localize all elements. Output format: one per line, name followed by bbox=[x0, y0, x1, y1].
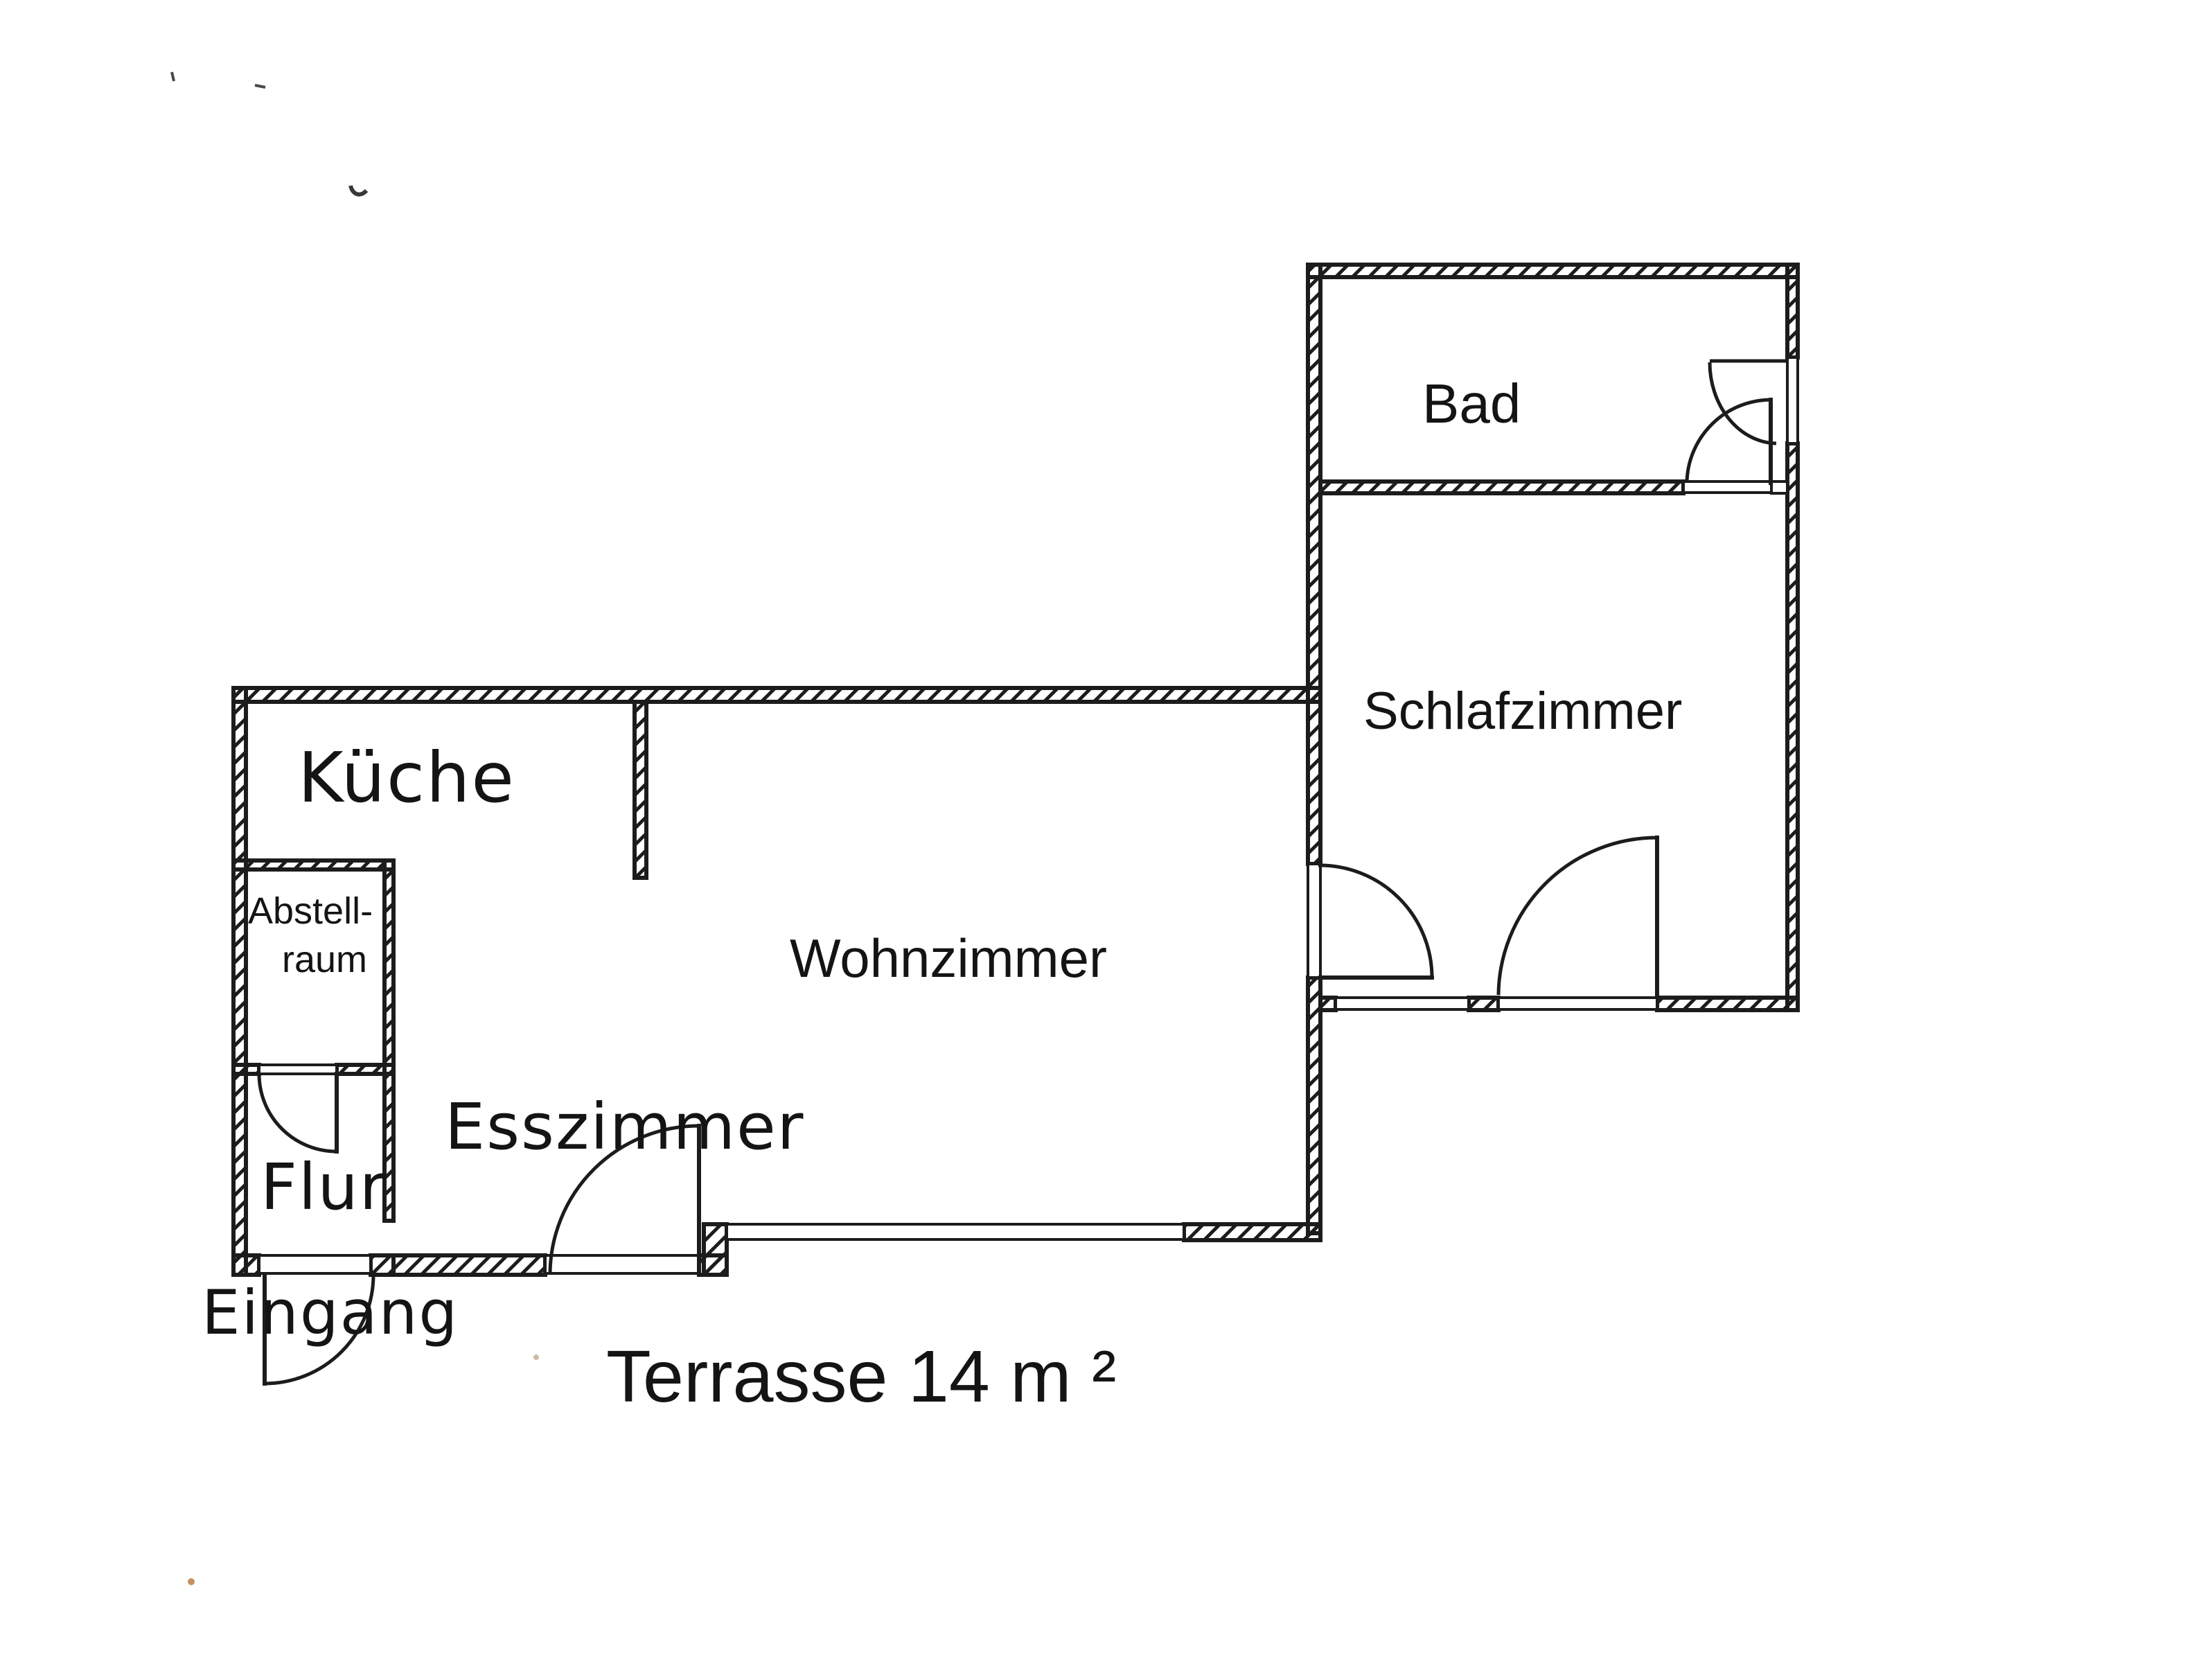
wall-schlafzimmer-bottom-c bbox=[1657, 998, 1798, 1010]
threshold-abstellraum-door bbox=[259, 1065, 337, 1074]
threshold-schlafzimmer-terrace-door bbox=[1498, 998, 1657, 1009]
label-flur: Flur bbox=[260, 1150, 387, 1224]
label-bad: Bad bbox=[1422, 373, 1521, 434]
label-abstellraum-line2: raum bbox=[282, 939, 367, 980]
scan-artifact-tick bbox=[172, 72, 174, 81]
wall-left-right-section bbox=[1308, 265, 1320, 864]
scan-artifact-tan-dot bbox=[533, 1354, 539, 1360]
wall-divider-kueche-wohnzimmer bbox=[635, 702, 646, 878]
wall-abstellraum-right bbox=[384, 860, 393, 1074]
label-terrasse: Terrasse 14 m ² bbox=[606, 1336, 1116, 1418]
floor-plan-svg: Küche Abstell- raum Flur Esszimmer Wohnz… bbox=[0, 0, 2212, 1660]
wall-bottom-wohnzimmer-solid bbox=[1184, 1224, 1320, 1240]
scan-artifact-squiggle bbox=[351, 186, 366, 195]
window-schlafzimmer-terrace bbox=[1336, 998, 1469, 1009]
window-wohnzimmer-terrace bbox=[727, 1224, 1184, 1239]
schlafzimmer-west-door-arc bbox=[1318, 865, 1432, 978]
label-kueche: Küche bbox=[298, 737, 515, 818]
wall-bad-bottom bbox=[1320, 482, 1683, 493]
wall-bottom-left-of-entrance bbox=[233, 1255, 259, 1275]
window-bad-east-wall bbox=[1787, 357, 1798, 443]
threshold-entrance-door bbox=[259, 1255, 371, 1273]
label-eingang: Eingang bbox=[202, 1277, 459, 1348]
wall-step-terrace bbox=[704, 1224, 727, 1275]
wall-bottom-esszimmer bbox=[393, 1255, 545, 1275]
wall-right-east bbox=[1787, 443, 1798, 1010]
jamb-schlafzimmer-west-door bbox=[1308, 864, 1320, 978]
wall-right-wohnzimmer bbox=[1308, 978, 1320, 1233]
wall-schlafzimmer-bottom-b bbox=[1469, 998, 1498, 1010]
scan-artifact-orange-dot bbox=[188, 1578, 195, 1585]
wall-bottom-right-of-entrance bbox=[371, 1255, 393, 1275]
wall-right-bad-upper bbox=[1787, 265, 1798, 357]
wall-abstellraum-top bbox=[233, 860, 393, 869]
wall-top-bad bbox=[1308, 265, 1798, 277]
wall-schlafzimmer-bottom-a bbox=[1320, 998, 1336, 1010]
jamb-bad-door-east bbox=[1771, 482, 1787, 493]
threshold-esszimmer-terrace-door bbox=[545, 1255, 699, 1273]
wall-abstellraum-bottom-left bbox=[233, 1065, 259, 1074]
wall-top-main bbox=[233, 688, 1320, 702]
schlafzimmer-terrace-door-arc bbox=[1498, 838, 1657, 995]
label-abstellraum-line1: Abstell- bbox=[248, 890, 373, 932]
scanned-floor-plan-page: Küche Abstell- raum Flur Esszimmer Wohnz… bbox=[0, 0, 2212, 1660]
threshold-bad-door bbox=[1683, 482, 1771, 493]
label-esszimmer: Esszimmer bbox=[445, 1090, 805, 1164]
abstellraum-door-arc bbox=[259, 1075, 337, 1151]
wall-left-main bbox=[233, 688, 246, 1275]
label-schlafzimmer: Schlafzimmer bbox=[1363, 682, 1682, 741]
scan-artifact-dash bbox=[255, 85, 265, 87]
label-wohnzimmer: Wohnzimmer bbox=[790, 928, 1107, 989]
